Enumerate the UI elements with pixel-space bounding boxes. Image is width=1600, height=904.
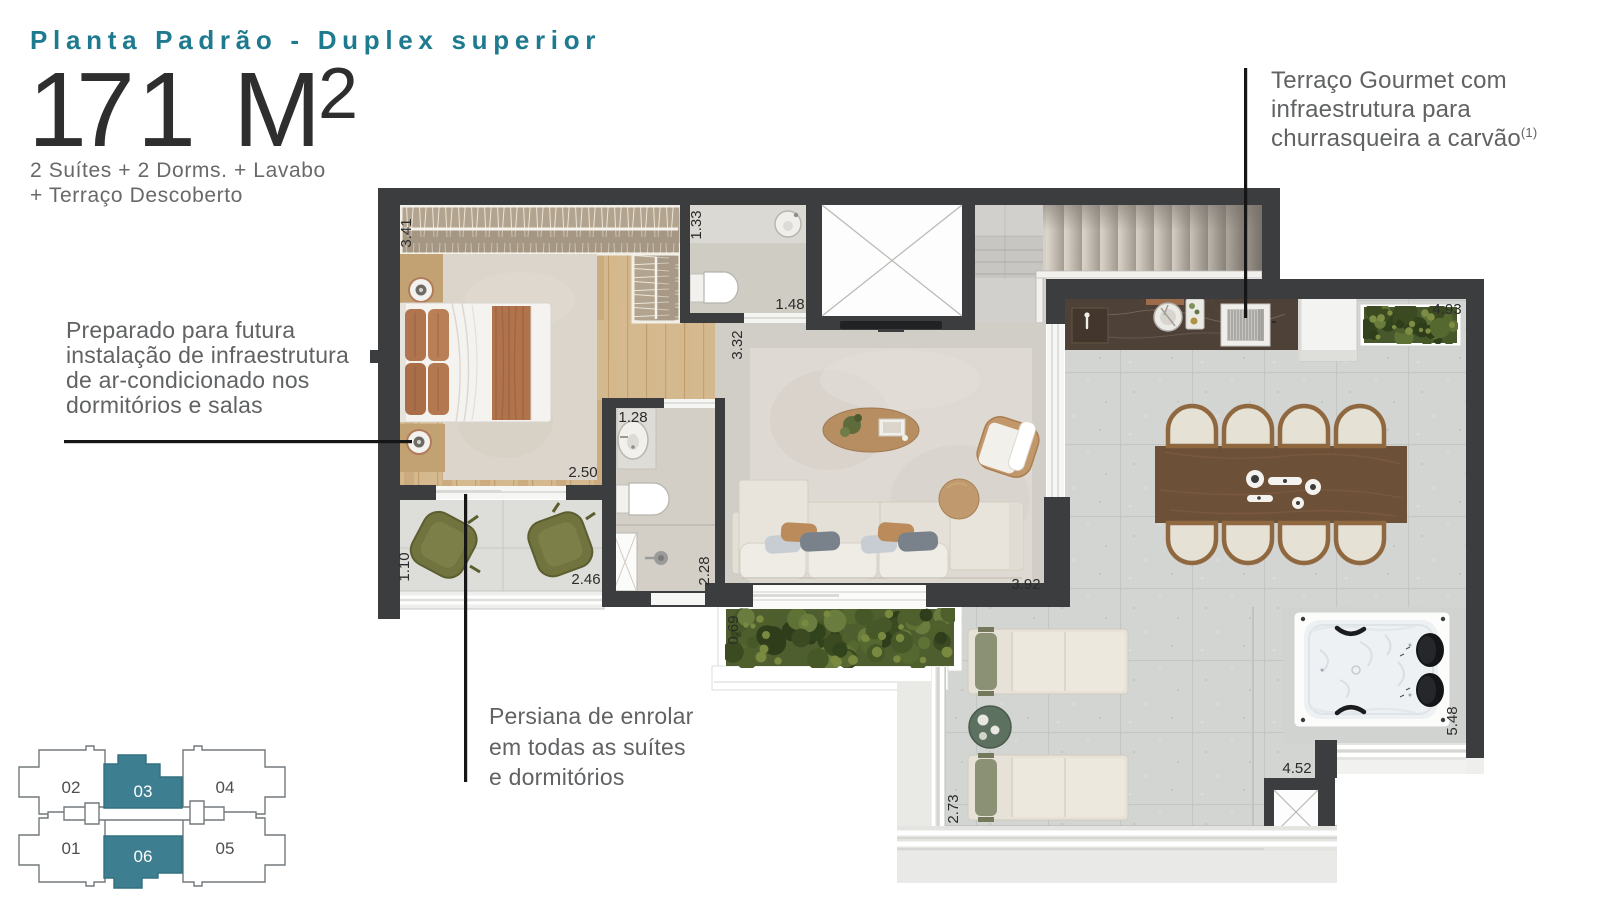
svg-text:1.10: 1.10 [396,552,413,581]
svg-text:5.48: 5.48 [1444,706,1461,735]
svg-text:1.33: 1.33 [688,210,705,239]
svg-text:3.32: 3.32 [729,330,746,359]
svg-text:05: 05 [216,839,235,858]
svg-text:04: 04 [216,778,235,797]
svg-text:4.52: 4.52 [1282,760,1311,777]
svg-text:03: 03 [134,782,153,801]
svg-text:01: 01 [62,839,81,858]
svg-text:3.41: 3.41 [398,218,415,247]
svg-text:2.73: 2.73 [945,794,962,823]
svg-text:0.69: 0.69 [725,615,742,644]
svg-text:4.93: 4.93 [1432,301,1461,318]
svg-text:02: 02 [62,778,81,797]
svg-text:1.48: 1.48 [775,296,804,313]
svg-text:06: 06 [134,847,153,866]
svg-text:1.28: 1.28 [618,409,647,426]
svg-text:3.92: 3.92 [1011,576,1040,593]
svg-text:2.46: 2.46 [571,571,600,588]
svg-text:2.28: 2.28 [696,556,713,585]
svg-text:2.50: 2.50 [568,464,597,481]
